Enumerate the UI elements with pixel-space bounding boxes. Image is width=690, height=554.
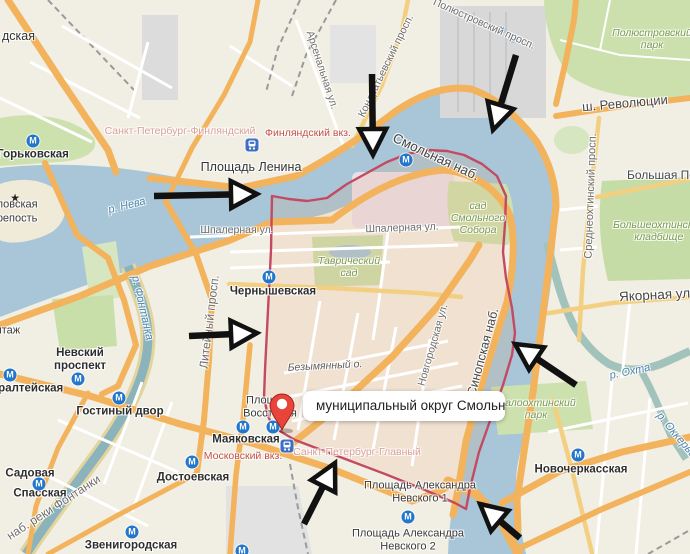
metro-icon[interactable]: М <box>236 545 249 554</box>
train-station-icon[interactable] <box>281 440 294 453</box>
base-map <box>0 0 690 554</box>
metro-icon[interactable]: М <box>402 511 415 524</box>
fortress-star-icon: ★ <box>10 192 20 205</box>
metro-icon[interactable]: М <box>126 526 139 539</box>
metro-icon[interactable]: М <box>186 456 199 469</box>
metro-icon[interactable]: М <box>400 154 413 167</box>
metro-icon[interactable]: М <box>237 421 250 434</box>
map-canvas[interactable]: дскаяГорьковскаяСанкт-Петербург-Финляндс… <box>0 0 690 554</box>
metro-icon[interactable]: М <box>263 271 276 284</box>
metro-icon[interactable]: М <box>572 449 585 462</box>
train-station-icon[interactable] <box>246 139 259 152</box>
district-info-label[interactable]: муниципальный округ Смольн... <box>303 391 505 421</box>
metro-icon[interactable]: М <box>72 373 85 386</box>
metro-icon[interactable]: М <box>113 392 126 405</box>
metro-icon[interactable]: М <box>4 369 17 382</box>
map-pin[interactable] <box>263 385 301 433</box>
metro-icon[interactable]: М <box>27 135 40 148</box>
metro-icon[interactable]: М <box>33 478 46 491</box>
